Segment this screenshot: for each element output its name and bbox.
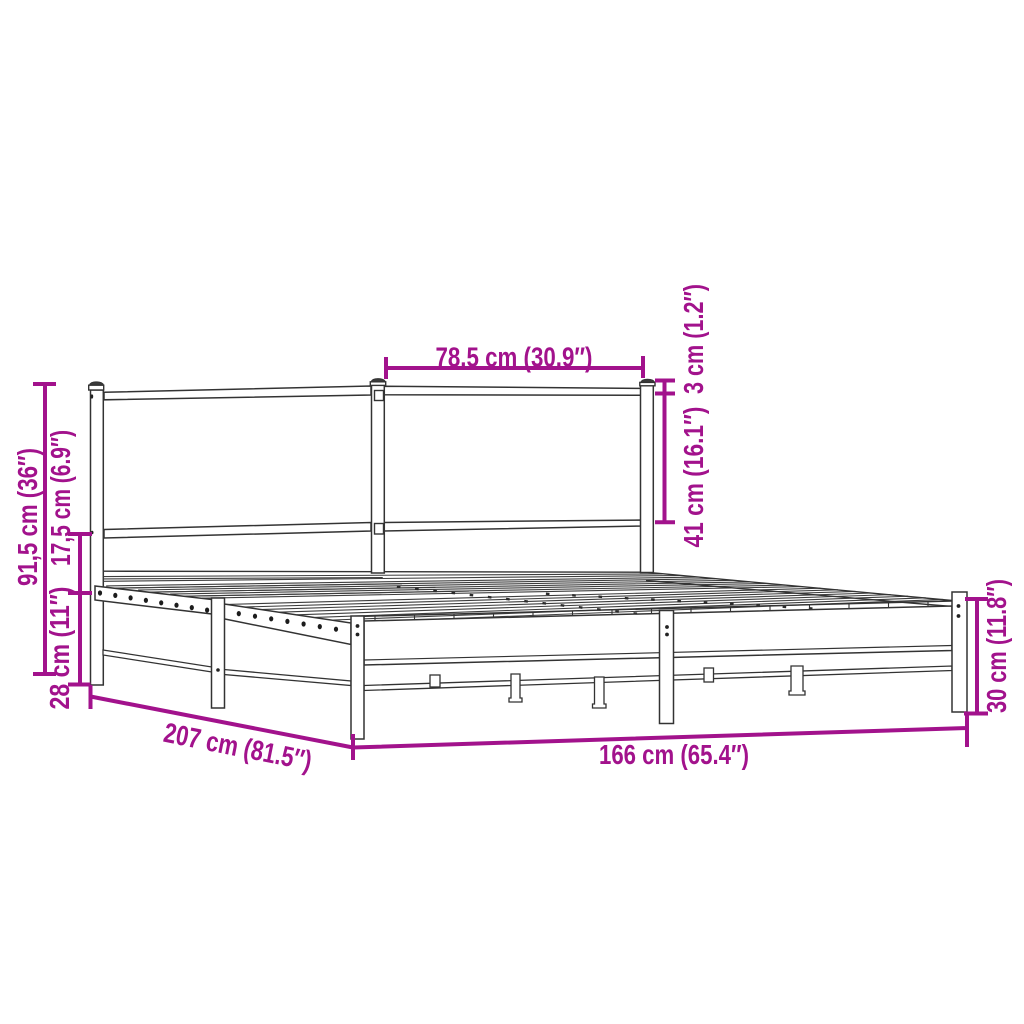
svg-text:78.5 cm (30.9″): 78.5 cm (30.9″) (436, 342, 593, 373)
svg-text:91,5 cm (36″): 91,5 cm (36″) (12, 448, 43, 586)
svg-text:41 cm (16.1″): 41 cm (16.1″) (678, 407, 709, 548)
svg-text:30 cm (11.8″): 30 cm (11.8″) (981, 579, 1012, 713)
svg-text:17,5 cm (6.9″): 17,5 cm (6.9″) (45, 430, 76, 566)
svg-text:28 cm (11″): 28 cm (11″) (44, 587, 75, 710)
svg-text:3 cm (1.2″): 3 cm (1.2″) (678, 284, 709, 394)
svg-text:166 cm (65.4″): 166 cm (65.4″) (599, 739, 749, 770)
